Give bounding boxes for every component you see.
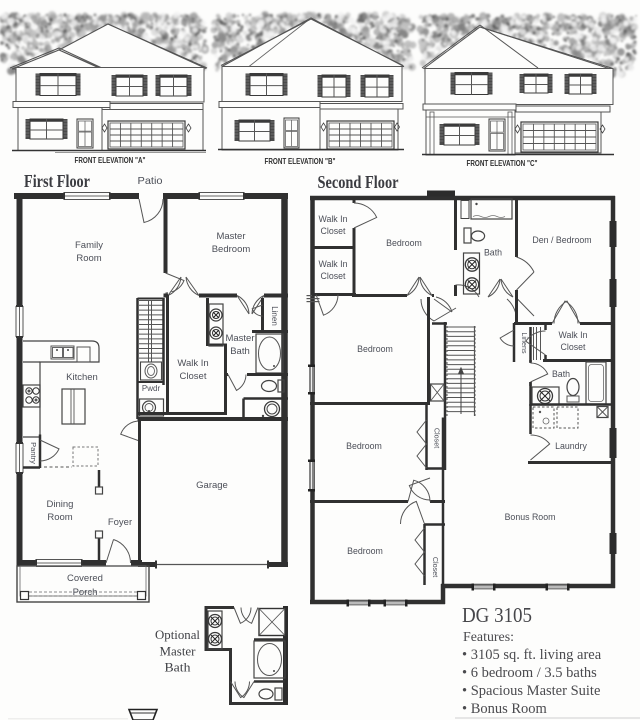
svg-text:FRONT ELEVATION "C": FRONT ELEVATION "C"	[467, 159, 538, 168]
svg-text:Den / Bedroom: Den / Bedroom	[532, 235, 591, 245]
svg-text:• Spacious Master Suite: • Spacious Master Suite	[462, 683, 600, 699]
svg-text:FRONT ELEVATION "B": FRONT ELEVATION "B"	[265, 157, 336, 166]
svg-text:Closet: Closet	[433, 428, 442, 448]
svg-text:Bedroom: Bedroom	[357, 344, 393, 354]
svg-text:Master: Master	[216, 231, 245, 242]
svg-text:Porch: Porch	[73, 587, 98, 598]
svg-text:Pantry: Pantry	[29, 442, 38, 464]
svg-text:Bath: Bath	[552, 369, 570, 379]
svg-text:Features:: Features:	[463, 630, 514, 645]
svg-text:Kitchen: Kitchen	[66, 372, 98, 383]
svg-text:Bath: Bath	[165, 660, 192, 675]
svg-text:Bedroom: Bedroom	[386, 238, 422, 248]
svg-text:Walk In: Walk In	[318, 214, 347, 224]
svg-text:Garage: Garage	[196, 480, 228, 491]
svg-text:• 6 bedroom / 3.5 baths: • 6 bedroom / 3.5 baths	[462, 665, 597, 681]
svg-text:Bath: Bath	[230, 346, 250, 357]
svg-text:Master: Master	[225, 333, 254, 344]
svg-text:Bedroom: Bedroom	[346, 441, 382, 451]
svg-text:Closet: Closet	[431, 557, 440, 577]
svg-text:Foyer: Foyer	[108, 517, 132, 528]
svg-text:Optional: Optional	[155, 627, 200, 642]
svg-text:Second Floor: Second Floor	[318, 172, 399, 192]
svg-text:Bonus Room: Bonus Room	[505, 512, 556, 522]
svg-text:Room: Room	[47, 512, 72, 523]
svg-text:Walk In: Walk In	[558, 330, 587, 340]
svg-text:Bedroom: Bedroom	[347, 546, 383, 556]
svg-text:Laundry: Laundry	[555, 441, 587, 451]
svg-text:Family: Family	[75, 240, 103, 251]
svg-text:Walk In: Walk In	[177, 358, 208, 369]
svg-text:Closet: Closet	[180, 371, 207, 382]
svg-text:Bath: Bath	[484, 248, 502, 258]
svg-text:Bedroom: Bedroom	[212, 244, 251, 255]
svg-text:Dining: Dining	[47, 499, 74, 510]
svg-text:Covered: Covered	[67, 573, 103, 584]
svg-text:• Bonus Room: • Bonus Room	[462, 701, 548, 717]
svg-text:DG 3105: DG 3105	[462, 603, 532, 627]
svg-text:Master: Master	[160, 644, 197, 659]
svg-text:Linen: Linen	[270, 306, 279, 326]
svg-text:FRONT ELEVATION "A": FRONT ELEVATION "A"	[75, 156, 146, 165]
svg-text:• 3105 sq. ft. living area: • 3105 sq. ft. living area	[462, 647, 602, 663]
svg-text:Walk In: Walk In	[318, 259, 347, 269]
svg-text:Room: Room	[76, 253, 101, 264]
svg-text:Closet: Closet	[321, 226, 346, 236]
svg-text:Pwdr: Pwdr	[142, 384, 161, 393]
svg-text:Linens: Linens	[520, 332, 529, 354]
svg-text:First Floor: First Floor	[24, 171, 90, 191]
svg-text:Patio: Patio	[138, 175, 163, 187]
svg-text:Closet: Closet	[561, 342, 586, 352]
svg-text:Closet: Closet	[321, 271, 346, 281]
